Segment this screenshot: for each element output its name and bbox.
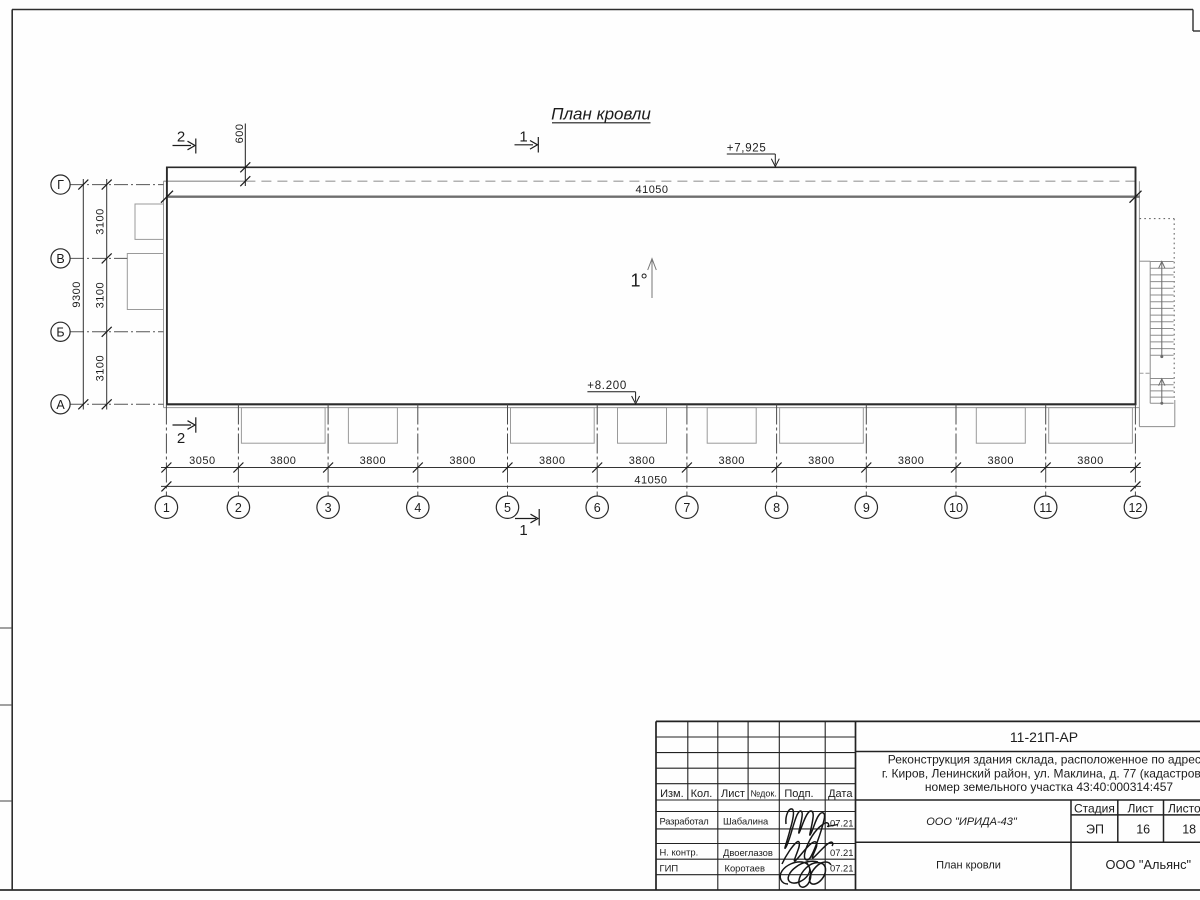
svg-text:3050: 3050 [189,455,215,467]
svg-text:41050: 41050 [634,474,667,486]
svg-text:3800: 3800 [270,455,296,467]
svg-text:3800: 3800 [718,455,744,467]
svg-text:3800: 3800 [1077,455,1103,467]
svg-text:План кровли: План кровли [551,105,651,124]
svg-text:3800: 3800 [629,455,655,467]
svg-text:+7,925: +7,925 [727,142,767,154]
svg-text:Разработал: Разработал [660,816,709,827]
svg-text:Г: Г [57,178,64,192]
svg-text:1: 1 [163,501,170,515]
svg-text:Н. контр.: Н. контр. [660,847,699,858]
svg-text:Подп.: Подп. [784,788,813,800]
svg-text:ЭП: ЭП [1086,823,1104,837]
svg-text:12: 12 [1128,501,1142,515]
svg-text:07.21: 07.21 [830,847,853,858]
svg-text:9: 9 [863,501,870,515]
svg-text:2: 2 [177,430,185,447]
svg-text:07.21: 07.21 [830,863,853,874]
svg-text:г. Киров, Ленинский район, ул.: г. Киров, Ленинский район, ул. Маклина, … [882,766,1200,780]
svg-text:5: 5 [504,501,511,515]
svg-text:3800: 3800 [449,455,475,467]
svg-text:ГИП: ГИП [660,862,679,873]
svg-text:4: 4 [414,501,421,515]
svg-text:600: 600 [234,124,246,144]
svg-text:3800: 3800 [808,455,834,467]
svg-text:16: 16 [1136,823,1150,837]
svg-text:План кровли: План кровли [936,859,1001,871]
svg-text:ООО "Альянс": ООО "Альянс" [1106,857,1192,872]
svg-text:Кол.: Кол. [691,788,713,800]
svg-text:11: 11 [1039,501,1052,515]
svg-text:1: 1 [519,129,527,146]
svg-text:Шабалина: Шабалина [723,816,769,827]
svg-text:41050: 41050 [635,184,668,196]
svg-text:Листов: Листов [1168,801,1200,815]
svg-text:3100: 3100 [94,208,106,234]
svg-text:Коротаев: Коротаев [725,862,766,873]
svg-text:11-21П-АР: 11-21П-АР [1010,729,1078,745]
svg-text:1°: 1° [631,271,648,291]
svg-text:Дата: Дата [828,788,853,800]
svg-text:3100: 3100 [94,282,106,308]
svg-text:3100: 3100 [94,355,106,381]
svg-text:+8.200: +8.200 [587,380,627,392]
svg-text:18: 18 [1182,823,1196,837]
svg-text:Лист: Лист [721,788,745,800]
svg-text:номер земельного участка 43:40: номер земельного участка 43:40:000314:45… [925,780,1174,794]
svg-text:07.21: 07.21 [830,817,853,828]
svg-text:9300: 9300 [71,281,83,307]
svg-text:Лист: Лист [1128,801,1155,815]
svg-text:Двоеглазов: Двоеглазов [723,847,773,858]
svg-text:10: 10 [949,501,963,515]
svg-text:7: 7 [683,501,690,515]
svg-text:Стадия: Стадия [1074,801,1115,815]
svg-text:ООО "ИРИДА-43": ООО "ИРИДА-43" [926,816,1018,828]
svg-text:Реконструкция здания склада, р: Реконструкция здания склада, расположенн… [888,753,1200,767]
svg-text:Б: Б [56,325,64,339]
svg-text:2: 2 [235,501,242,515]
svg-text:3800: 3800 [988,455,1014,467]
svg-text:Изм.: Изм. [660,788,684,800]
svg-text:3800: 3800 [539,455,565,467]
svg-text:8: 8 [773,501,780,515]
svg-text:3: 3 [325,501,332,515]
svg-text:2: 2 [177,129,185,146]
svg-text:№док.: №док. [751,788,777,798]
svg-text:6: 6 [594,501,601,515]
svg-text:1: 1 [519,522,527,539]
svg-text:А: А [56,398,65,412]
svg-text:3800: 3800 [360,455,386,467]
svg-text:В: В [56,252,64,266]
svg-text:3800: 3800 [898,455,924,467]
